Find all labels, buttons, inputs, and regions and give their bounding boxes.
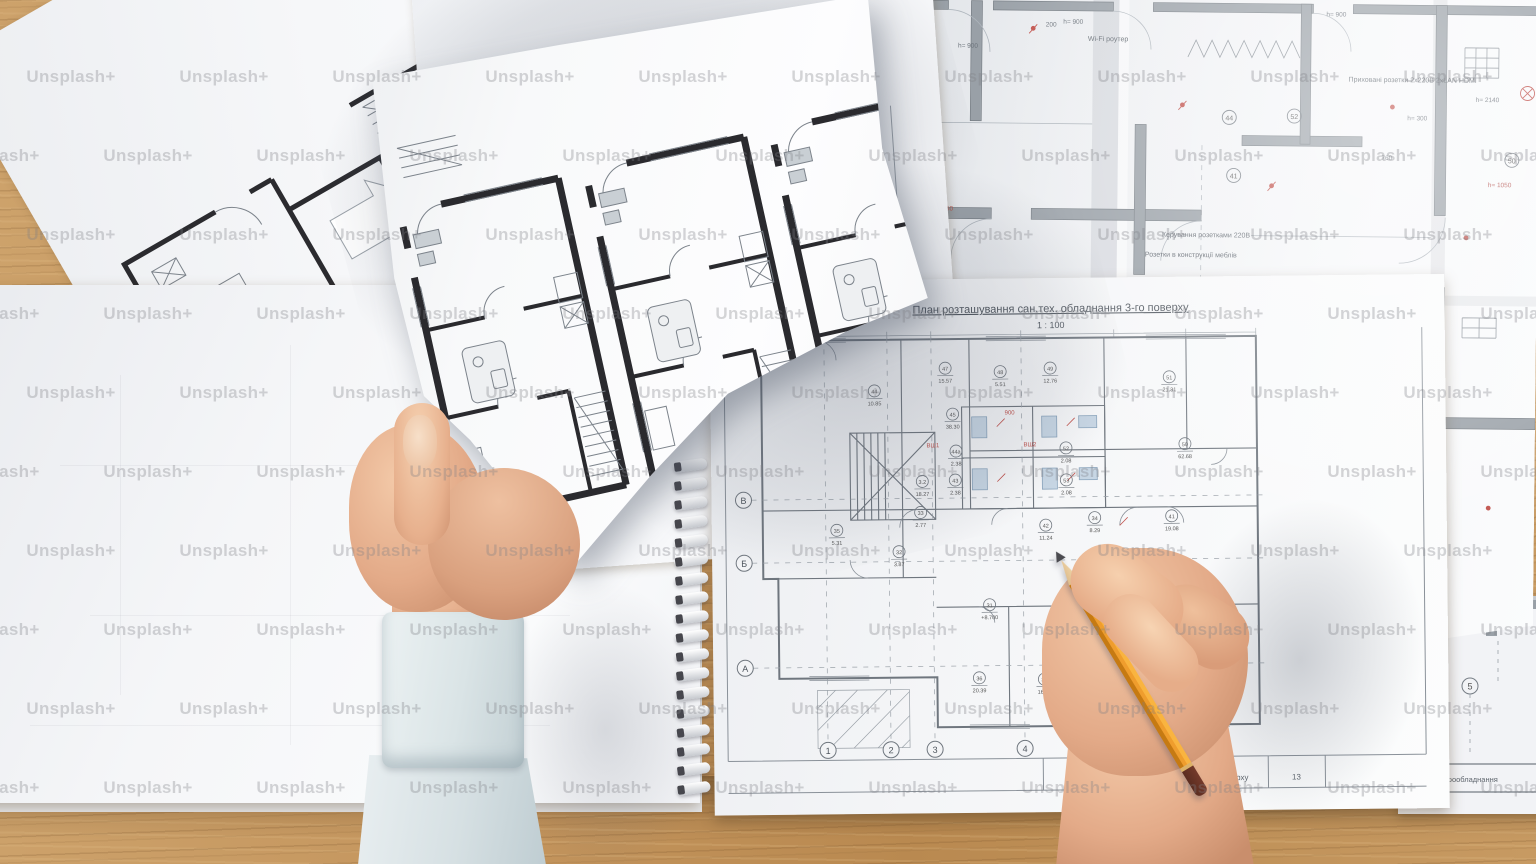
dim-label: h= 1050	[1488, 182, 1512, 189]
page-number: 13	[1292, 772, 1302, 781]
room-bubble: 52	[1290, 114, 1298, 121]
room-bubble: 50	[1508, 158, 1516, 165]
room-tag: 5121.31	[1161, 371, 1177, 394]
grid-col-label: 3	[933, 745, 938, 755]
photo-architect-blueprints: 5 вання електрообладнання	[0, 0, 1536, 864]
svg-text:8.29: 8.29	[1089, 528, 1100, 534]
svg-text:50: 50	[1182, 442, 1188, 448]
svg-text:2.08: 2.08	[1061, 490, 1072, 496]
left-thumb-nail	[403, 415, 437, 469]
held-sheet-units	[382, 33, 997, 520]
room-tag: 532.08	[1058, 474, 1074, 497]
svg-text:21.31: 21.31	[1162, 387, 1176, 393]
ghost-line	[290, 345, 291, 745]
svg-text:52: 52	[1063, 446, 1069, 452]
dim-label: 760	[1381, 155, 1392, 162]
room-tag: 4119.08	[1164, 510, 1180, 533]
svg-text:62.68: 62.68	[1178, 454, 1192, 460]
room-bubble: 44	[1225, 115, 1233, 122]
dim-label: h= 900	[1063, 19, 1084, 26]
electrical-label: Розетки в конструкції меблів	[1145, 250, 1237, 259]
left-sleeve	[358, 755, 546, 864]
ghost-line	[120, 375, 121, 695]
dim-label: h= 900	[1326, 11, 1347, 18]
room-bubble: 41	[1230, 173, 1238, 180]
svg-text:2.08: 2.08	[1061, 458, 1072, 464]
svg-text:19.08: 19.08	[1165, 526, 1179, 532]
floor-plan-unit-3	[766, 92, 997, 438]
electrical-label: Wi-Fi роутер	[1088, 36, 1129, 43]
grid-col-label: 4	[1023, 744, 1028, 754]
grid-col-label: 2	[889, 745, 894, 755]
dim-label: h= 300	[1407, 115, 1428, 122]
electrical-label: Керування розетками 220В	[1162, 232, 1251, 240]
svg-text:53: 53	[1063, 478, 1069, 484]
svg-text:34: 34	[1092, 516, 1098, 522]
left-sleeve-cuff	[382, 612, 524, 768]
grid-bubble-5: 5	[1467, 682, 1472, 692]
grid-col-label: 1	[826, 746, 831, 756]
svg-text:41: 41	[1169, 514, 1175, 520]
electrical-label: Приховані розетки 2х220В 2хLAN HDMI	[1349, 76, 1477, 85]
room-tag: 522.08	[1058, 442, 1074, 465]
svg-text:51: 51	[1166, 375, 1172, 381]
room-tag: 348.29	[1087, 512, 1103, 535]
dim-label: h= 2140	[1476, 97, 1500, 104]
